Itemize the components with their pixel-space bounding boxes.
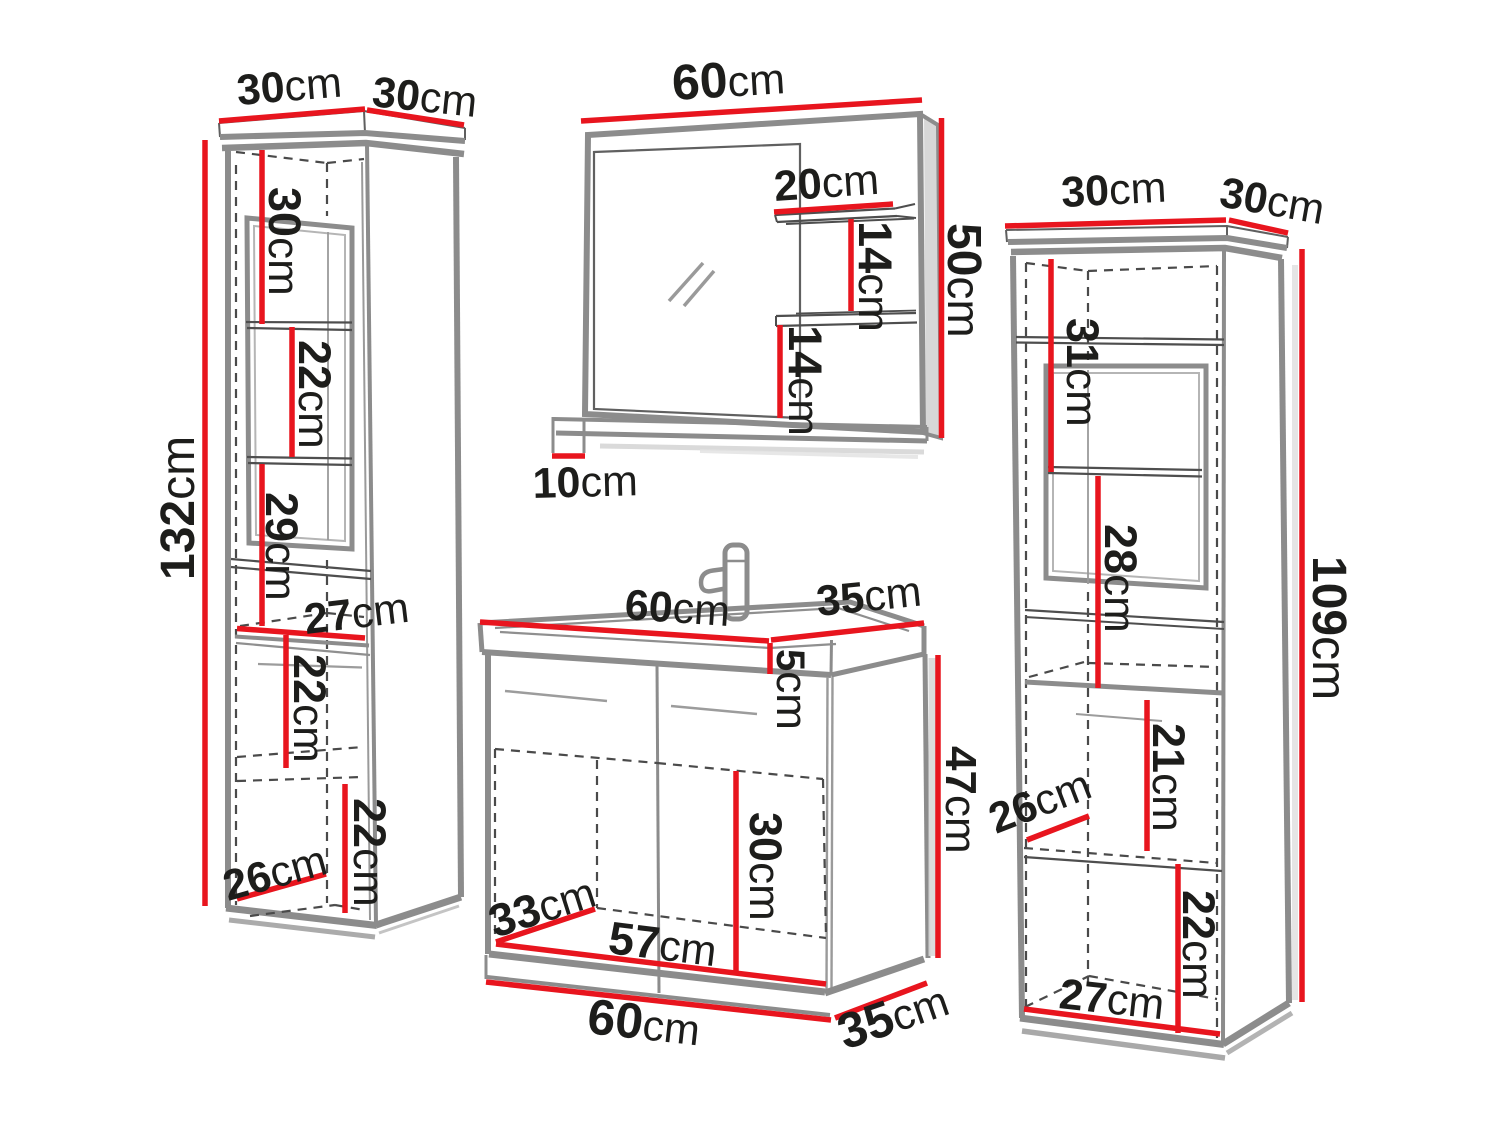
svg-text:60cm: 60cm xyxy=(670,48,786,111)
svg-text:30cm: 30cm xyxy=(1060,164,1168,217)
svg-text:31cm: 31cm xyxy=(1057,318,1108,427)
svg-text:28cm: 28cm xyxy=(1095,524,1146,633)
svg-text:30cm: 30cm xyxy=(259,187,310,296)
svg-text:22cm: 22cm xyxy=(284,654,335,763)
svg-text:14cm: 14cm xyxy=(849,221,902,332)
svg-text:30cm: 30cm xyxy=(235,59,344,115)
svg-text:21cm: 21cm xyxy=(1143,723,1194,832)
svg-text:5cm: 5cm xyxy=(767,649,816,730)
svg-text:22cm: 22cm xyxy=(1173,890,1224,999)
svg-text:60cm: 60cm xyxy=(623,581,731,636)
svg-text:30cm: 30cm xyxy=(740,812,791,921)
svg-text:14cm: 14cm xyxy=(779,325,832,436)
svg-text:47cm: 47cm xyxy=(936,746,985,854)
svg-text:132cm: 132cm xyxy=(152,436,205,580)
svg-text:22cm: 22cm xyxy=(344,798,395,907)
svg-text:29cm: 29cm xyxy=(256,492,307,601)
svg-text:20cm: 20cm xyxy=(772,156,880,211)
svg-text:22cm: 22cm xyxy=(289,340,340,449)
svg-text:10cm: 10cm xyxy=(532,457,638,508)
svg-text:109cm: 109cm xyxy=(1302,556,1355,700)
svg-text:50cm: 50cm xyxy=(937,223,990,338)
